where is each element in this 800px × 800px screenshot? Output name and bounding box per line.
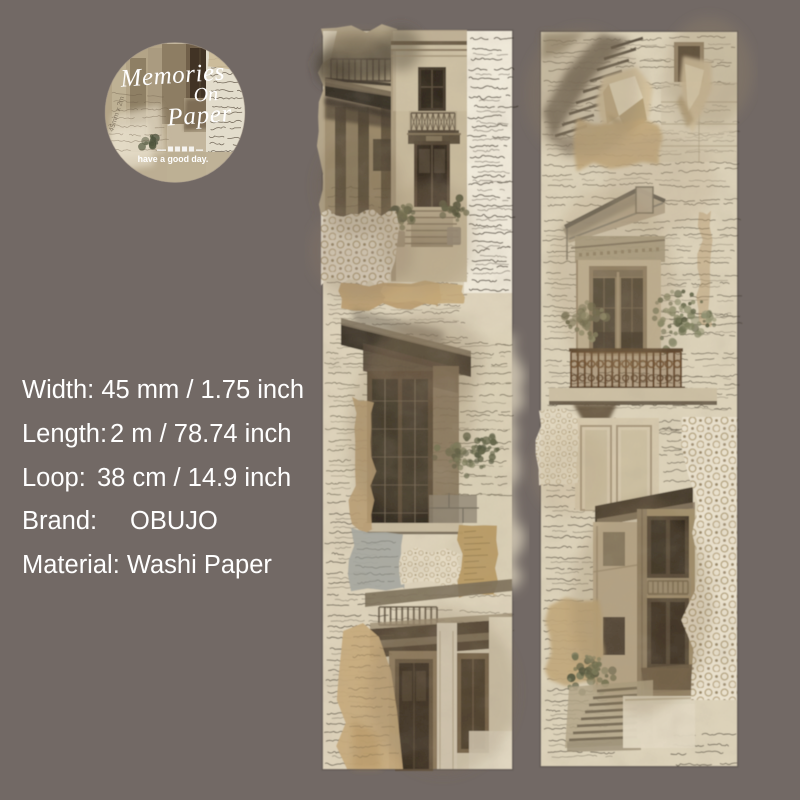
svg-text:Paper: Paper bbox=[165, 100, 232, 131]
svg-text:have a good day.: have a good day. bbox=[138, 154, 209, 164]
svg-text:Material: Washi Paper: Material: Washi Paper bbox=[22, 551, 272, 579]
svg-text:Length:2 m / 78.74 inch: Length:2 m / 78.74 inch bbox=[22, 420, 291, 448]
svg-text:Loop:38 cm / 14.9 inch: Loop:38 cm / 14.9 inch bbox=[22, 464, 291, 492]
svg-text:Width: 45 mm / 1.75 inch: Width: 45 mm / 1.75 inch bbox=[22, 376, 304, 404]
